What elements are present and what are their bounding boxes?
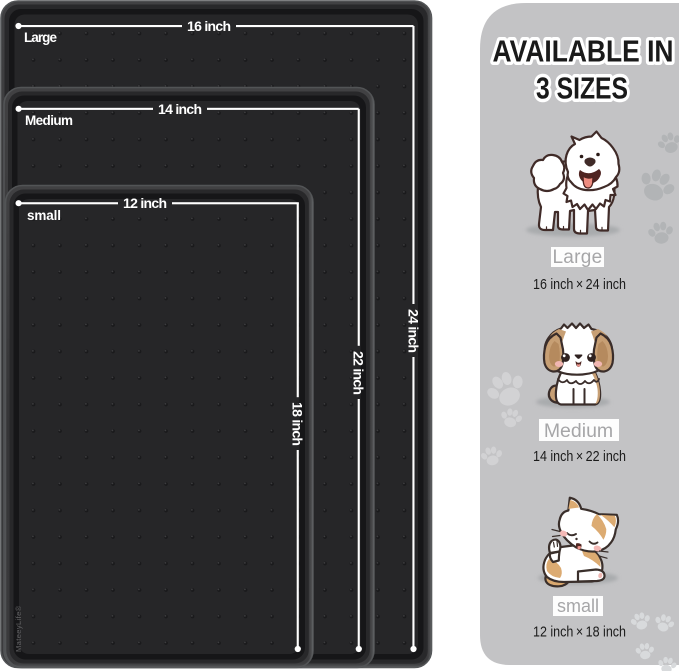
svg-text:Medium: Medium bbox=[25, 113, 73, 128]
svg-text:Large: Large bbox=[24, 30, 57, 45]
svg-text:12 inch × 18 inch: 12 inch × 18 inch bbox=[533, 624, 626, 641]
svg-text:12 inch: 12 inch bbox=[123, 195, 167, 211]
svg-text:3 SIZES: 3 SIZES bbox=[536, 71, 628, 106]
svg-text:Medium: Medium bbox=[544, 420, 613, 442]
svg-text:AVAILABLE IN: AVAILABLE IN bbox=[493, 34, 674, 69]
svg-text:small: small bbox=[27, 208, 61, 223]
svg-text:14 inch: 14 inch bbox=[158, 101, 202, 117]
svg-text:22 inch: 22 inch bbox=[351, 351, 367, 395]
svg-text:14 inch × 22 inch: 14 inch × 22 inch bbox=[533, 448, 626, 465]
svg-text:small: small bbox=[557, 596, 599, 616]
svg-text:18 inch: 18 inch bbox=[290, 402, 306, 446]
svg-text:Large: Large bbox=[552, 247, 602, 268]
svg-text:MateeyLife®: MateeyLife® bbox=[14, 605, 23, 652]
svg-text:16 inch × 24 inch: 16 inch × 24 inch bbox=[533, 276, 626, 293]
svg-text:24 inch: 24 inch bbox=[405, 309, 421, 353]
svg-text:16 inch: 16 inch bbox=[187, 18, 231, 34]
